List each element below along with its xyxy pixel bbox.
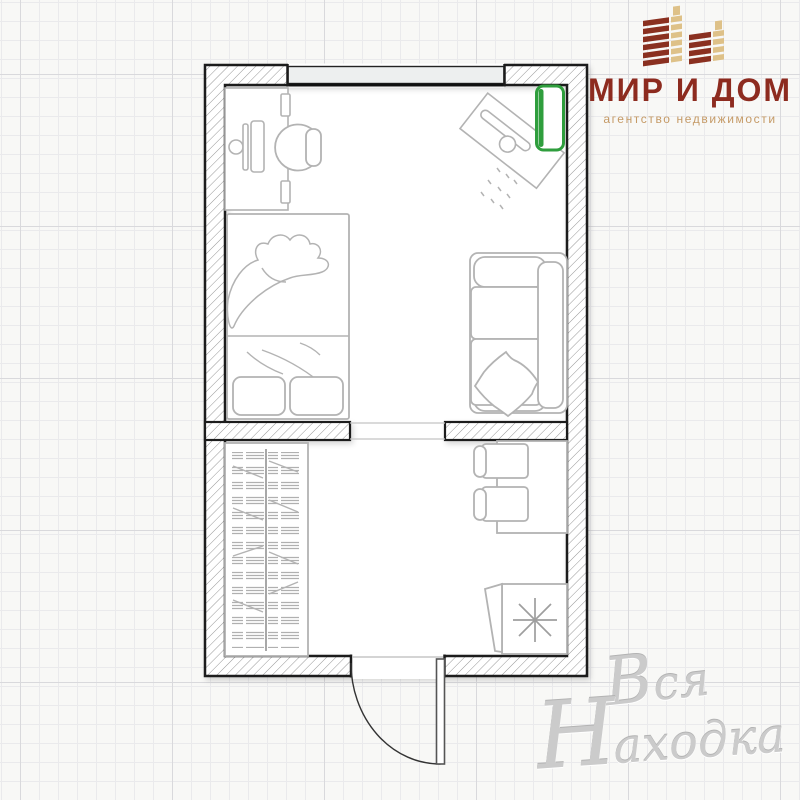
window [288, 64, 505, 88]
agency-tagline: агентство недвижимости [575, 112, 800, 126]
wardrobe-with-hangers [225, 443, 308, 656]
chair [474, 487, 528, 521]
pillow [233, 377, 285, 415]
bed [227, 214, 349, 419]
watermark-word-2: Находка [533, 679, 787, 779]
door-leaf [437, 659, 445, 764]
agency-name: МИР И ДОМ [575, 72, 800, 109]
agency-logo: МИР И ДОМ агентство недвижимости [575, 4, 800, 126]
chair [474, 444, 528, 478]
entrance-door [351, 653, 445, 764]
office-chair [275, 125, 321, 171]
wall-heater [537, 86, 564, 150]
snowflake-icon [513, 598, 557, 642]
refrigerator [485, 584, 567, 654]
screenshot-canvas: МИР И ДОМ агентство недвижимости Вся Нах… [0, 0, 800, 800]
buildings-icon [635, 4, 745, 70]
pillow [290, 377, 343, 415]
sofa-with-pillow [470, 253, 567, 416]
